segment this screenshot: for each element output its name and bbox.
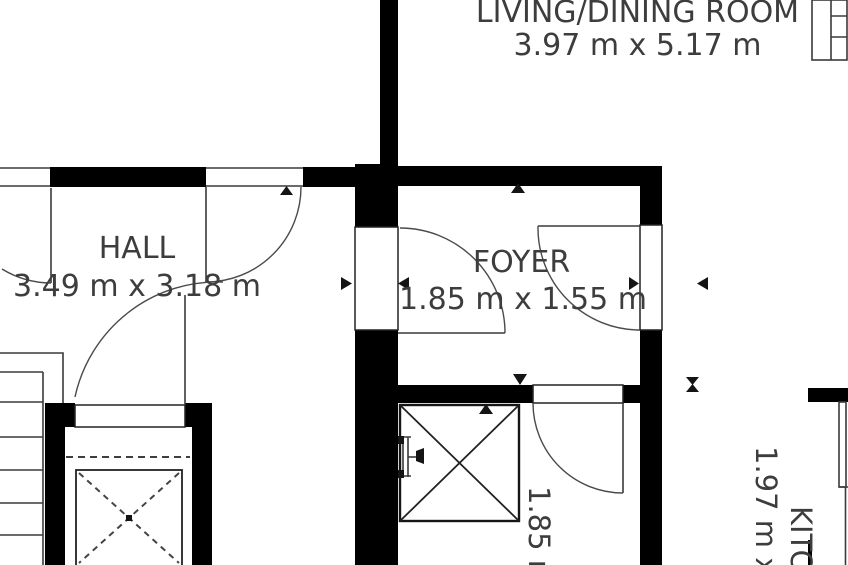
arrow-up-icon: [280, 186, 293, 195]
jamb-hall-foyer: [355, 227, 398, 330]
arrow-right-icon: [341, 277, 352, 290]
wall-foyer-top: [398, 166, 662, 186]
wall-living-left: [380, 0, 398, 168]
room-dims-kitchen: 1.97 m x: [751, 446, 780, 565]
room-label-hall: HALL: [12, 234, 262, 264]
room-dims-lower-room: 1.85 m: [524, 486, 553, 565]
arrow-down-icon: [686, 377, 699, 385]
wall-hall-foyer-divider-lower: [355, 330, 398, 565]
arrow-down-icon: [513, 374, 527, 385]
floorplan-canvas: LIVING/DINING ROOM 3.97 m x 5.17 m HALL …: [0, 0, 848, 565]
radiator-knob: [416, 448, 424, 464]
wall-elevator-left: [45, 403, 65, 565]
wall-elevator-corner-left: [45, 403, 75, 427]
wall-elevator-right: [192, 403, 212, 565]
room-dims-living-dining: 3.97 m x 5.17 m: [420, 31, 848, 61]
closet-outline: [0, 353, 63, 403]
door-arc-bathroom: [533, 403, 623, 493]
room-dims-hall: 3.49 m x 3.18 m: [12, 272, 262, 302]
stair-treads: [0, 402, 43, 535]
wall-foyer-right-lower: [640, 330, 662, 565]
room-label-foyer: FOYER: [399, 248, 644, 278]
jamb-elevator: [75, 405, 185, 427]
kitchen-window: [839, 402, 846, 487]
wall-bath-bottom-left: [390, 385, 533, 403]
wall-kitchen-bar: [808, 388, 848, 402]
wall-hall-top-right: [303, 167, 355, 187]
wall-bath-bottom-right: [623, 385, 662, 403]
kitchen-linework: [839, 402, 848, 565]
elevator-x-center-dot: [126, 515, 132, 521]
wall-hall-top-left: [50, 167, 206, 187]
wall-junction-block: [355, 164, 398, 193]
opening-hall-top-door: [206, 168, 303, 186]
service-shaft: [400, 405, 519, 521]
room-label-kitchen: KITCHEN: [786, 506, 815, 565]
room-dims-foyer: 1.85 m x 1.55 m: [399, 285, 644, 315]
elevator-shaft: [66, 457, 190, 565]
opening-hall-window: [0, 168, 50, 186]
doors: [2, 187, 640, 493]
radiator-icon: [398, 436, 424, 478]
jamb-bathroom: [533, 385, 623, 403]
shaft-x-symbol: [400, 405, 519, 521]
kitchen-counter-lines: [839, 487, 848, 565]
radiator-nub-bottom: [398, 470, 404, 478]
wall-hall-foyer-divider-upper: [355, 193, 398, 227]
room-label-living-dining: LIVING/DINING ROOM: [420, 0, 848, 28]
arrow-left-icon: [697, 277, 708, 290]
radiator-nub-top: [398, 436, 404, 444]
door-arc-hall-foyer: [400, 228, 505, 333]
arrow-up-icon: [686, 384, 699, 392]
wall-foyer-right-upper: [640, 186, 662, 225]
